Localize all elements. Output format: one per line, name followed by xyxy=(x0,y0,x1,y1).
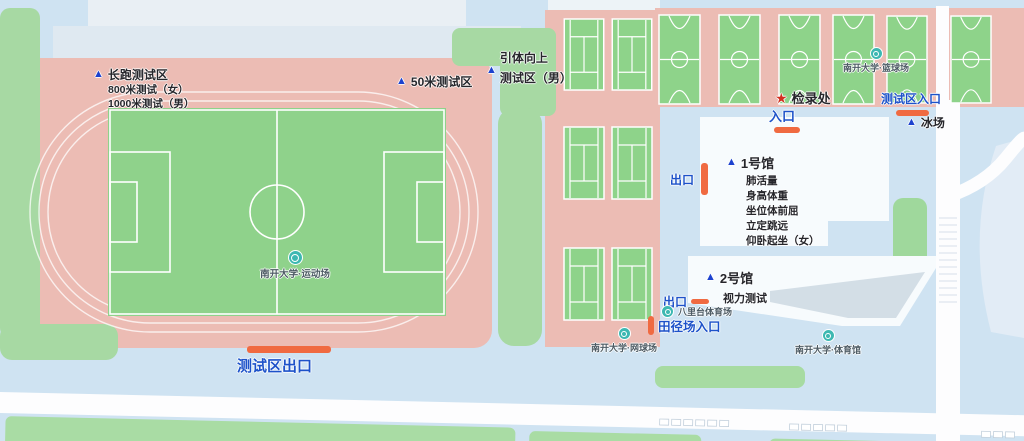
long-run-line-800m: 800米测试（女） xyxy=(108,83,194,97)
poi-tennis-courts: 南开大学·网球场 xyxy=(588,327,660,354)
basketball-courts-label: 南开大学·篮球场 xyxy=(836,61,916,74)
marker-test-area-entrance: 测试区入口 xyxy=(881,90,941,116)
test-area-exit-label: 测试区出口 xyxy=(237,355,331,376)
hall1-title: 1号馆 xyxy=(741,153,774,172)
marker-hall1: ▲ 1号馆 肺活量 身高体重 坐位体前屈 立定跳远 仰卧起坐（女） xyxy=(726,153,820,249)
marker-test-area-exit: 测试区出口 xyxy=(237,346,331,376)
marker-entrance: 入口 xyxy=(769,106,800,133)
check-in-title: 检录处 xyxy=(792,88,831,107)
triangle-marker-icon: ▲ xyxy=(486,65,497,88)
hall2-title: 2号馆 xyxy=(720,268,753,287)
marker-pull-up-test-area: ▲ 引体向上 测试区（男） xyxy=(486,48,572,88)
triangle-marker-icon: ▲ xyxy=(726,157,737,168)
soccer-field xyxy=(108,108,446,316)
hall1-item: 坐位体前屈 xyxy=(746,204,820,219)
marker-exit-upper: 出口 xyxy=(670,163,710,196)
poi-gymnasium: 南开大学·体育馆 xyxy=(788,329,868,356)
hall2-item: 视力测试 xyxy=(723,290,767,306)
poi-icon xyxy=(618,327,631,340)
test-area-entrance-label: 测试区入口 xyxy=(881,90,941,107)
marker-check-in: ★ 检录处 xyxy=(775,88,831,107)
entrance-label: 入口 xyxy=(769,106,800,125)
50m-title: 50米测试区 xyxy=(411,73,472,90)
marker-50m-test-area: ▲ 50米测试区 xyxy=(396,73,472,90)
hall1-item: 肺活量 xyxy=(746,174,820,189)
marker-long-run-test-area: ▲ 长跑测试区 800米测试（女） 1000米测试（男） xyxy=(93,66,194,111)
triangle-marker-icon: ▲ xyxy=(705,272,716,283)
hall1-test-items: 肺活量 身高体重 坐位体前屈 立定跳远 仰卧起坐（女） xyxy=(746,174,820,249)
triangle-marker-icon: ▲ xyxy=(906,117,917,128)
poi-icon xyxy=(288,250,303,265)
sports-field-label: 南开大学·运动场 xyxy=(252,266,338,280)
gymnasium-label: 南开大学·体育馆 xyxy=(788,343,868,356)
long-run-title: 长跑测试区 xyxy=(108,66,168,83)
marker-hall2: ▲ 2号馆 视力测试 xyxy=(705,268,767,306)
entrance-gate-bar xyxy=(774,127,800,133)
triangle-marker-icon: ▲ xyxy=(396,76,407,87)
test-area-exit-gate-bar xyxy=(247,346,331,353)
marker-ice-rink: ▲ 冰场 xyxy=(906,114,945,131)
poi-icon xyxy=(822,329,835,342)
pull-up-line2: 测试区（男） xyxy=(500,68,572,88)
poi-icon xyxy=(870,47,883,60)
hall1-item: 身高体重 xyxy=(746,189,820,204)
poi-basketball-courts: 南开大学·篮球场 xyxy=(836,47,916,74)
athletic-field-entrance-label: 田径场入口 xyxy=(658,316,721,335)
poi-sports-field: 南开大学·运动场 xyxy=(252,250,338,280)
triangle-marker-icon: ▲ xyxy=(93,69,104,80)
campus-sports-map: ▲ 长跑测试区 800米测试（女） 1000米测试（男） ▲ 50米测试区 ▲ … xyxy=(0,0,1024,441)
hall1-item: 立定跳远 xyxy=(746,219,820,234)
hall1-item: 仰卧起坐（女） xyxy=(746,234,820,249)
tennis-courts-label: 南开大学·网球场 xyxy=(588,341,660,354)
exit-lower-gate-bar xyxy=(691,299,709,304)
pull-up-line1: 引体向上 xyxy=(500,48,572,68)
long-run-line-1000m: 1000米测试（男） xyxy=(108,97,194,111)
exit-upper-gate-bar xyxy=(701,163,708,195)
ice-rink-label: 冰场 xyxy=(921,114,945,131)
check-in-star-icon: ★ xyxy=(775,91,788,105)
